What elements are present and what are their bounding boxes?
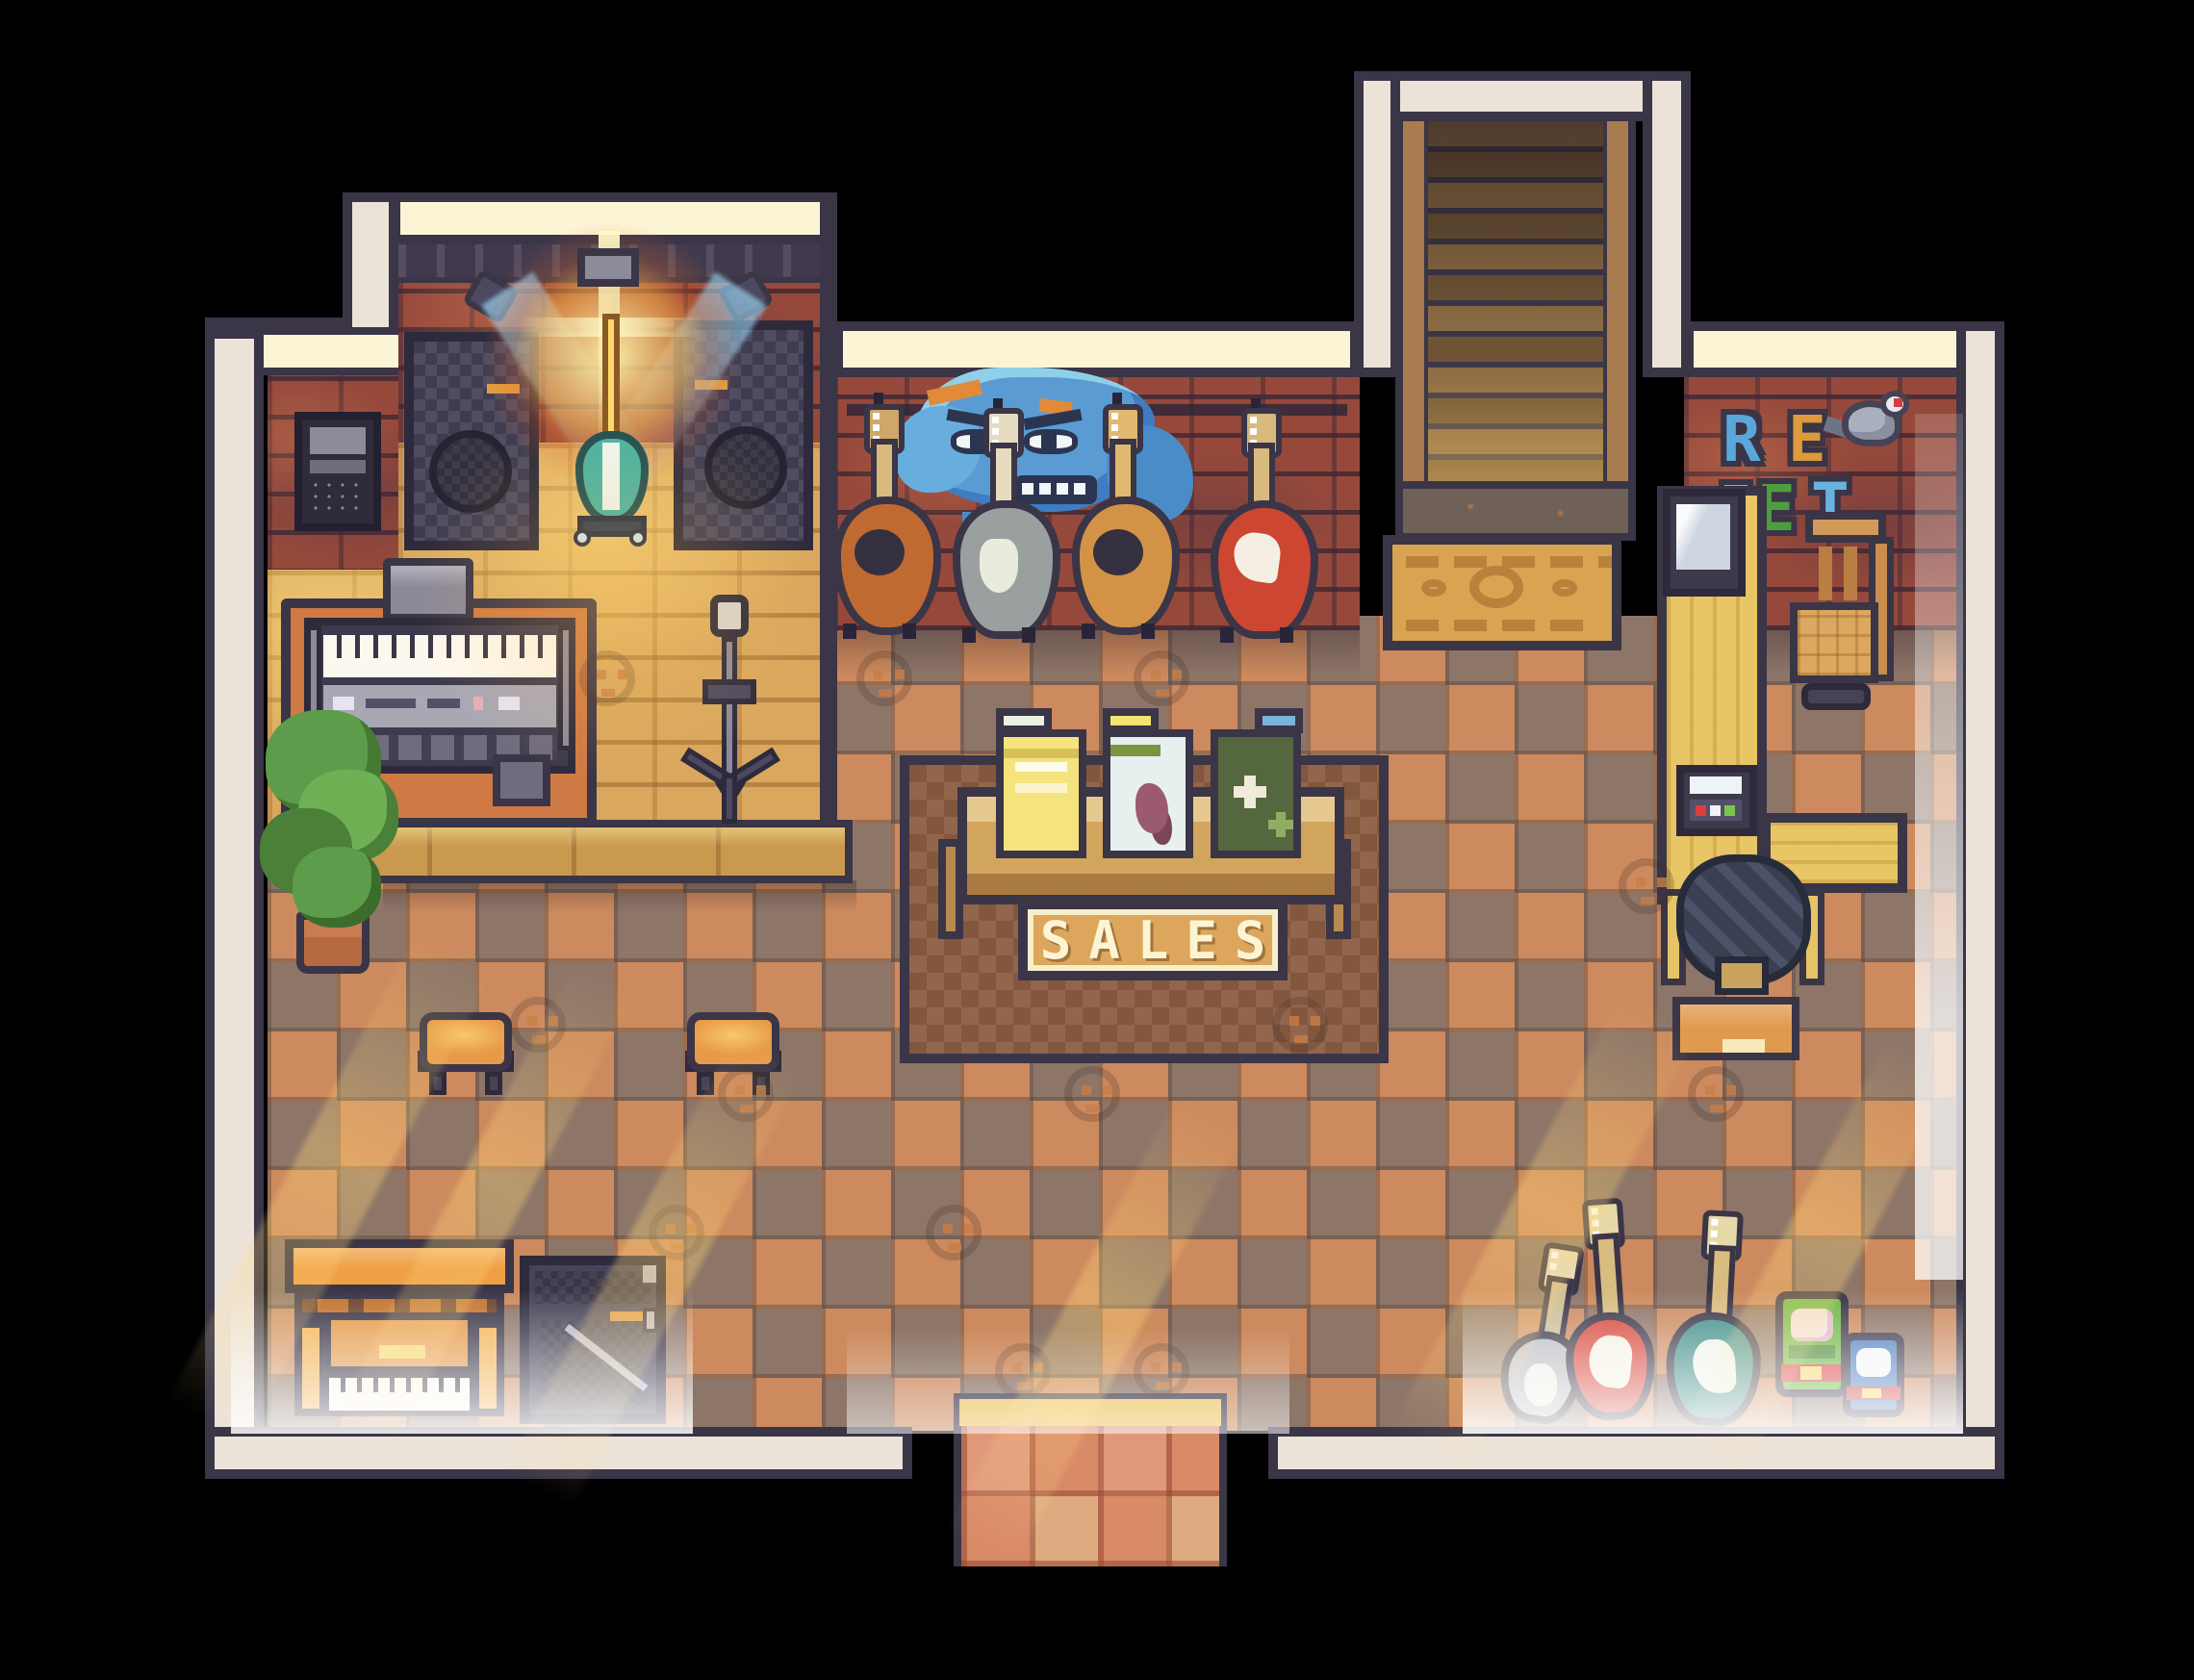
staircase-steps[interactable] <box>1428 114 1603 489</box>
chair-feet <box>1801 683 1871 710</box>
music-shop-scene: R E E T <box>0 0 2194 1680</box>
mascot-face <box>1856 1348 1891 1377</box>
cash-register[interactable] <box>1676 765 1757 836</box>
stage-speaker-left[interactable] <box>404 332 539 550</box>
album-tab <box>1103 708 1159 733</box>
wall-guitar-amber[interactable] <box>1064 393 1170 645</box>
cabinet-panel <box>310 427 366 454</box>
mic-collar <box>702 679 756 704</box>
album-fold <box>1004 749 1079 758</box>
guitar-feet <box>1220 627 1234 643</box>
laptop[interactable] <box>383 558 473 622</box>
truss-mount <box>577 248 639 287</box>
right-wall <box>1956 321 2004 1479</box>
potted-plant[interactable] <box>260 702 404 981</box>
trophy-guitar-stripe <box>602 443 620 510</box>
smiley-tile-motif <box>1134 650 1189 706</box>
stand-foot <box>574 529 591 547</box>
register-key-white <box>1710 805 1721 816</box>
guitar-pickguard <box>980 539 1018 593</box>
left-ledge <box>264 335 398 375</box>
mic-stand[interactable] <box>674 595 789 830</box>
plant-foliage <box>293 847 381 928</box>
smiley-tile-motif <box>926 1205 982 1260</box>
synth-rail <box>558 625 574 751</box>
guitar-feet <box>843 624 856 639</box>
cabinet-strip <box>310 460 366 473</box>
album-detail <box>1015 762 1067 772</box>
guitar-soundhole <box>1093 529 1143 575</box>
doormat-dot <box>1421 579 1446 597</box>
chair-slat <box>1819 547 1832 600</box>
wall-cabinet[interactable] <box>294 412 381 531</box>
trophy-guitar[interactable] <box>574 308 651 558</box>
register-key-red <box>1696 805 1706 816</box>
trophy-guitar-neck <box>602 314 620 448</box>
guitar-feet <box>1082 624 1095 639</box>
doormat-ring <box>1469 566 1523 608</box>
piano-leg <box>472 1320 504 1416</box>
smiley-tile-motif <box>1134 1343 1189 1399</box>
album-tab <box>996 708 1052 733</box>
synth-keys <box>323 635 556 677</box>
album-green[interactable] <box>1211 729 1301 858</box>
wall-guitar-orange[interactable] <box>826 393 931 645</box>
cabinet-grill <box>310 479 366 516</box>
smiley-tile-motif <box>1619 858 1674 914</box>
stage-room-top-wall <box>391 192 833 244</box>
pigeon-eye <box>1894 398 1902 407</box>
stage-shadow <box>383 880 856 913</box>
sales-sign[interactable]: SALES <box>1018 900 1288 980</box>
chair-slat <box>1844 547 1857 600</box>
bottom-wall-right <box>1268 1427 2004 1479</box>
monitor-screen <box>1676 504 1730 570</box>
album-yellow[interactable] <box>996 729 1086 858</box>
album-cross-green <box>1268 812 1293 837</box>
album-band <box>1110 745 1161 756</box>
doormat-dot <box>1552 579 1577 597</box>
mascot-base <box>1847 1387 1901 1400</box>
speaker-woofer <box>429 430 512 513</box>
pigeon[interactable] <box>1824 387 1921 473</box>
guitar-pickguard <box>1523 1362 1558 1407</box>
stairs-left-pillar <box>1354 71 1400 377</box>
stairs-left-rail <box>1395 114 1432 489</box>
synth-pixel <box>473 697 483 710</box>
stairs-right-pillar <box>1643 71 1691 377</box>
mic-pole <box>722 637 737 781</box>
wall-guitar-red[interactable] <box>1203 398 1309 647</box>
album-plum[interactable] <box>1103 729 1193 858</box>
poster-letter: R <box>1722 408 1761 471</box>
bench-label <box>1722 1039 1765 1053</box>
album-tab <box>1255 708 1303 733</box>
smiley-tile-motif <box>1272 997 1328 1053</box>
customer-bag <box>1715 956 1769 995</box>
guitar-soundhole <box>855 529 905 575</box>
stool-leg <box>485 1072 502 1095</box>
stairs-landing <box>1395 481 1636 541</box>
register-buttons <box>1690 800 1742 821</box>
chair-seat <box>1790 602 1878 683</box>
album-cross-white <box>1234 776 1266 808</box>
smiley-tile-motif <box>579 650 635 706</box>
keyboard-bench[interactable] <box>493 754 550 806</box>
desk-monitor[interactable] <box>1663 489 1746 597</box>
stairs-right-rail <box>1599 114 1636 489</box>
doormat-dashes <box>1406 620 1596 631</box>
poster-letter: E <box>1788 408 1826 471</box>
register-key-green <box>1724 805 1735 816</box>
mic-leg <box>722 774 737 824</box>
guitar-feet <box>962 627 976 643</box>
speaker-woofer <box>704 426 787 509</box>
doormat[interactable] <box>1383 535 1621 650</box>
smiley-tile-motif <box>856 650 912 706</box>
speaker-knobs <box>695 380 727 390</box>
mic-head <box>710 595 749 637</box>
mascot-figure-blue[interactable] <box>1843 1333 1904 1417</box>
wall-guitar-silver[interactable] <box>945 398 1051 647</box>
smiley-tile-motif <box>1688 1066 1744 1122</box>
synth-pixel <box>498 697 520 710</box>
wooden-chair[interactable] <box>1776 508 1898 715</box>
sales-sign-text: SALES <box>1028 909 1278 971</box>
mascot-base-center <box>1800 1366 1822 1380</box>
album-emblem <box>1135 783 1168 833</box>
synth-pixel <box>427 699 460 708</box>
register-screen <box>1690 776 1742 794</box>
mascot-base-center <box>1862 1388 1881 1398</box>
stage-speaker-right[interactable] <box>674 320 813 550</box>
stand-foot <box>629 529 647 547</box>
smiley-tile-motif <box>1064 1066 1120 1122</box>
speaker-knobs <box>487 384 520 394</box>
